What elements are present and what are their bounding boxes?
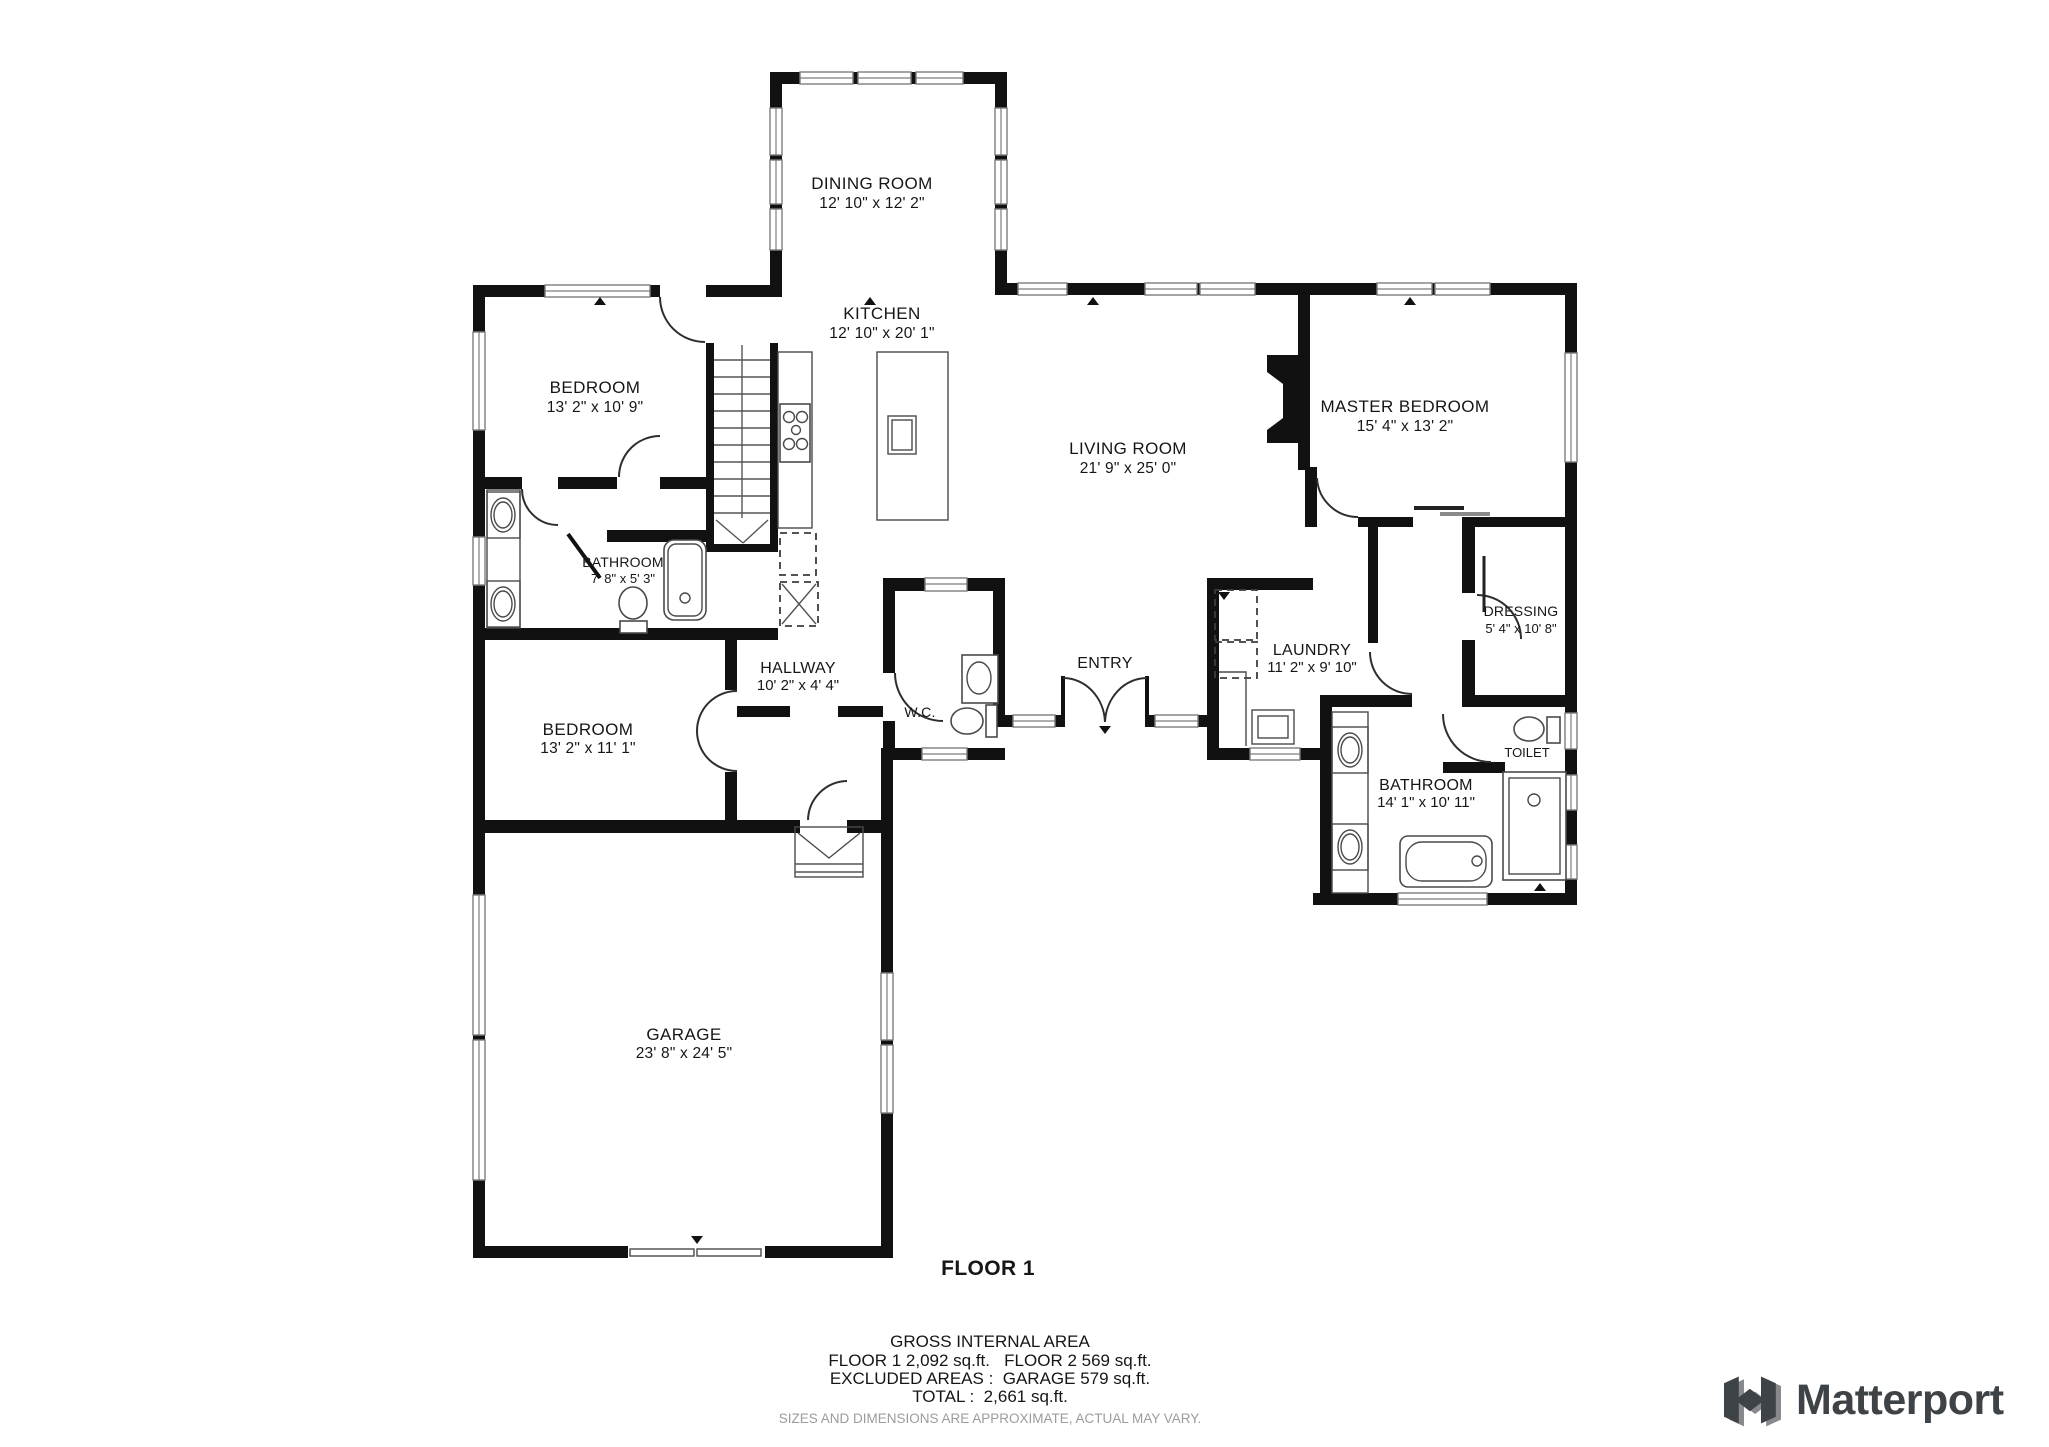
window bbox=[995, 108, 1007, 155]
room-dims: 15' 4" x 13' 2" bbox=[1357, 418, 1454, 435]
window bbox=[800, 72, 853, 84]
appliance-icon bbox=[780, 582, 818, 626]
summary-excluded: EXCLUDED AREAS : GARAGE 579 sq.ft. bbox=[830, 1369, 1150, 1388]
room-name: BATHROOM bbox=[1379, 777, 1473, 794]
wc-sink-icon bbox=[962, 655, 998, 703]
sliding-door-icon bbox=[1414, 506, 1490, 516]
room-label-entry: ENTRY bbox=[1077, 655, 1132, 672]
room-label-bedroom-2: BEDROOM 13' 2" x 11' 1" bbox=[540, 720, 635, 757]
door-arc bbox=[522, 489, 558, 525]
room-name: TOILET bbox=[1504, 745, 1549, 760]
window bbox=[770, 160, 782, 204]
fixtures bbox=[487, 297, 1566, 1244]
bathtub-icon bbox=[1400, 836, 1492, 887]
windows bbox=[473, 72, 1577, 1258]
toilet-icon bbox=[1514, 717, 1560, 743]
door-arc bbox=[697, 731, 737, 771]
floor-title: FLOOR 1 bbox=[941, 1257, 1035, 1280]
window bbox=[473, 537, 485, 585]
window bbox=[1435, 283, 1490, 295]
room-name: BEDROOM bbox=[543, 720, 634, 739]
window bbox=[1565, 775, 1577, 810]
window bbox=[881, 973, 893, 1040]
fireplace-icon bbox=[1267, 355, 1310, 443]
summary-title: GROSS INTERNAL AREA bbox=[890, 1332, 1090, 1351]
summary-floors: FLOOR 1 2,092 sq.ft. FLOOR 2 569 sq.ft. bbox=[828, 1351, 1151, 1370]
window bbox=[1250, 748, 1300, 760]
room-dims: 7' 8" x 5' 3" bbox=[591, 571, 655, 586]
door-arc bbox=[1317, 478, 1358, 517]
room-label-toilet: TOILET bbox=[1504, 745, 1549, 760]
room-label-dressing: DRESSING 5' 4" x 10' 8" bbox=[1484, 603, 1559, 636]
room-name: W.C. bbox=[904, 704, 935, 720]
stove-icon bbox=[780, 404, 810, 462]
window bbox=[995, 160, 1007, 204]
door-arc bbox=[660, 297, 705, 342]
window bbox=[995, 209, 1007, 250]
door-arc bbox=[808, 781, 847, 820]
bathroom-vanity-icon bbox=[1332, 712, 1368, 893]
room-label-kitchen: KITCHEN 12' 10" x 20' 1" bbox=[829, 304, 934, 342]
room-label-hallway: HALLWAY 10' 2" x 4' 4" bbox=[757, 660, 839, 694]
floor-plan-canvas: DINING ROOM 12' 10" x 12' 2" KITCHEN 12'… bbox=[0, 0, 2049, 1447]
refrigerator-icon bbox=[780, 533, 816, 575]
room-dims: 12' 10" x 20' 1" bbox=[829, 325, 934, 342]
room-name: LAUNDRY bbox=[1273, 642, 1351, 659]
floorplan-page: DINING ROOM 12' 10" x 12' 2" KITCHEN 12'… bbox=[0, 0, 2049, 1447]
matterport-brand: Matterport bbox=[1724, 1376, 2004, 1426]
laundry-counter-icon bbox=[1219, 672, 1294, 746]
room-name: KITCHEN bbox=[843, 304, 920, 323]
walls bbox=[473, 72, 1577, 1258]
staircase-icon bbox=[714, 343, 770, 544]
window bbox=[1155, 715, 1198, 727]
room-name: LIVING ROOM bbox=[1069, 439, 1187, 458]
room-dims: 14' 1" x 10' 11" bbox=[1377, 794, 1475, 811]
room-label-bedroom-1: BEDROOM 13' 2" x 10' 9" bbox=[547, 378, 644, 416]
window bbox=[1565, 713, 1577, 749]
summary-total: TOTAL : 2,661 sq.ft. bbox=[912, 1387, 1068, 1406]
room-dims: 13' 2" x 10' 9" bbox=[547, 399, 644, 416]
room-dims: 5' 4" x 10' 8" bbox=[1485, 621, 1557, 636]
bathtub-icon bbox=[664, 540, 706, 620]
room-label-living: LIVING ROOM 21' 9" x 25' 0" bbox=[1069, 439, 1187, 477]
room-dims: 10' 2" x 4' 4" bbox=[757, 677, 839, 694]
door-arc bbox=[1370, 652, 1412, 694]
window bbox=[770, 108, 782, 155]
door-arc bbox=[1443, 714, 1491, 762]
door-arc bbox=[619, 436, 660, 477]
room-dims: 12' 10" x 12' 2" bbox=[819, 195, 924, 212]
wc-toilet-icon bbox=[951, 705, 997, 737]
room-name: BATHROOM bbox=[582, 554, 663, 570]
window bbox=[1018, 283, 1067, 295]
window bbox=[881, 1045, 893, 1113]
window bbox=[770, 209, 782, 250]
room-label-master-bedroom: MASTER BEDROOM 15' 4" x 13' 2" bbox=[1320, 397, 1489, 435]
window bbox=[473, 1040, 485, 1180]
room-name: MASTER BEDROOM bbox=[1320, 397, 1489, 416]
room-name: BEDROOM bbox=[550, 378, 641, 397]
room-dims: 23' 8" x 24' 5" bbox=[636, 1045, 733, 1062]
footer: FLOOR 1 GROSS INTERNAL AREA FLOOR 1 2,09… bbox=[779, 1257, 1202, 1426]
basement-stairs-icon bbox=[795, 827, 863, 877]
room-dims: 11' 2" x 9' 10" bbox=[1267, 659, 1357, 676]
window bbox=[1013, 715, 1055, 727]
window bbox=[1565, 845, 1577, 879]
room-name: HALLWAY bbox=[760, 660, 836, 677]
window bbox=[473, 332, 485, 430]
room-label-bathroom-2: BATHROOM 14' 1" x 10' 11" bbox=[1377, 777, 1475, 811]
window bbox=[858, 72, 911, 84]
window bbox=[1200, 283, 1255, 295]
shower-icon bbox=[1503, 772, 1566, 880]
garage-door-icon bbox=[628, 1246, 765, 1258]
window bbox=[1377, 283, 1432, 295]
window bbox=[473, 895, 485, 1035]
kitchen-island-icon bbox=[877, 352, 948, 520]
brand-wordmark: Matterport bbox=[1796, 1376, 2004, 1424]
summary-disclaimer: SIZES AND DIMENSIONS ARE APPROXIMATE, AC… bbox=[779, 1411, 1202, 1426]
window bbox=[922, 748, 967, 760]
window bbox=[1145, 283, 1197, 295]
room-label-laundry: LAUNDRY 11' 2" x 9' 10" bbox=[1267, 642, 1357, 676]
room-name: DINING ROOM bbox=[811, 174, 933, 193]
room-dims: 21' 9" x 25' 0" bbox=[1080, 460, 1177, 477]
door-arc bbox=[697, 691, 737, 731]
toilet-icon bbox=[619, 587, 647, 633]
kitchen-counter-icon bbox=[778, 352, 818, 626]
room-dims: 13' 2" x 11' 1" bbox=[540, 740, 635, 757]
window bbox=[925, 578, 967, 591]
window bbox=[545, 285, 650, 297]
vanity-sinks-icon bbox=[487, 490, 520, 628]
room-label-dining: DINING ROOM 12' 10" x 12' 2" bbox=[811, 174, 933, 212]
window bbox=[1398, 893, 1487, 905]
window bbox=[1565, 353, 1577, 462]
room-name: ENTRY bbox=[1077, 655, 1132, 672]
entry-double-door bbox=[1063, 676, 1147, 722]
room-name: DRESSING bbox=[1484, 603, 1559, 619]
room-label-wc: W.C. bbox=[904, 704, 935, 720]
matterport-logo-icon bbox=[1724, 1376, 1781, 1426]
room-name: GARAGE bbox=[646, 1025, 721, 1044]
room-label-garage: GARAGE 23' 8" x 24' 5" bbox=[636, 1025, 733, 1062]
window bbox=[916, 72, 963, 84]
washer-dryer-icon bbox=[1215, 590, 1257, 678]
